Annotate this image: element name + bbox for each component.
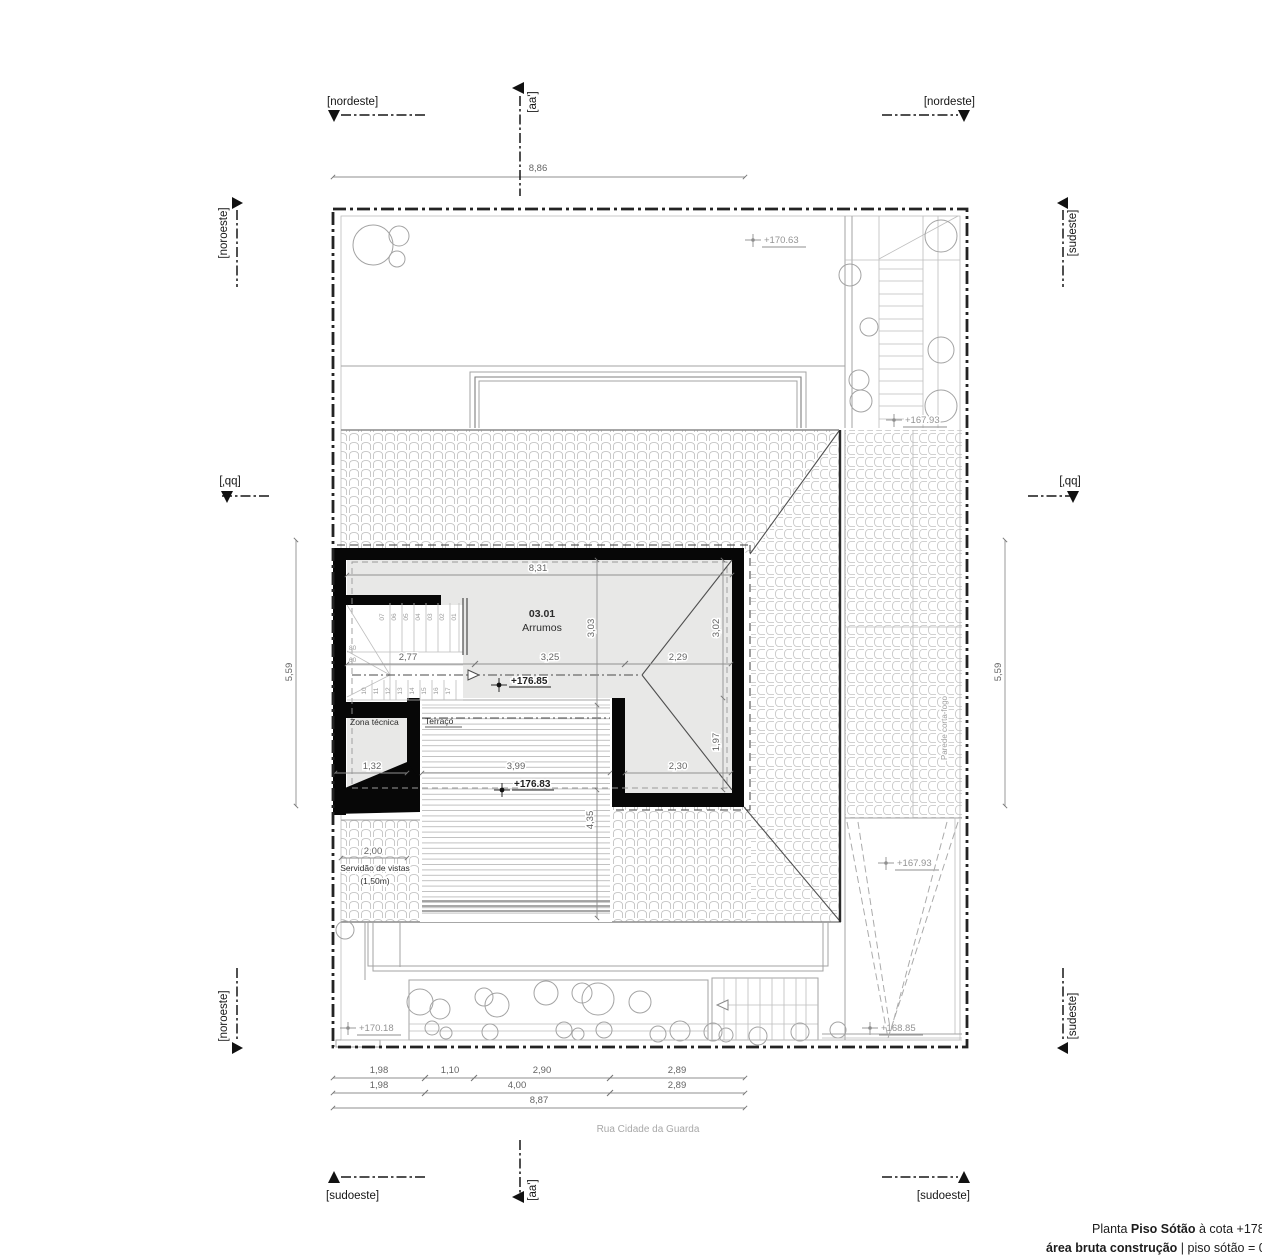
svg-text:+170.18: +170.18	[359, 1023, 394, 1034]
dim-room-width: 8,31	[529, 563, 548, 574]
svg-text:[bb']: [bb']	[219, 475, 240, 487]
svg-text:[aa']: [aa']	[527, 1179, 539, 1200]
plan-title-name: Piso Sótão	[1131, 1222, 1196, 1236]
svg-text:+176.85: +176.85	[511, 676, 548, 687]
marker-sudoeste-left: [sudoeste]	[326, 1171, 428, 1202]
marker-bb-right: [bb']	[1028, 475, 1081, 503]
level-roof-right: +167.93	[878, 857, 939, 870]
dim-terrace-width: 3,99	[507, 761, 526, 772]
svg-text:1,10: 1,10	[441, 1065, 460, 1076]
dim-room-right: 2,29	[669, 652, 688, 663]
dimension-chain-3: 8,87	[333, 1095, 745, 1108]
svg-text:[noroeste]: [noroeste]	[218, 990, 230, 1041]
area-value: | piso sótão = 031	[1177, 1241, 1262, 1255]
svg-text:[nordeste]: [nordeste]	[924, 96, 975, 108]
svg-text:2,90: 2,90	[533, 1065, 552, 1076]
servidao-line2: (1,50m)	[360, 876, 389, 886]
dim-servidao: 2,00	[364, 846, 383, 857]
dim-stair-run: 2,77	[399, 652, 418, 663]
stair-treads	[879, 269, 923, 419]
dim-top-width: 8,86	[529, 163, 548, 174]
dim-right-low-width: 2,30	[669, 761, 688, 772]
dim-right-low-height: 1,97	[711, 733, 722, 752]
dim-side-right: 5,59	[993, 663, 1004, 682]
svg-text:14: 14	[409, 687, 416, 695]
dim-terrace-depth: 4,35	[585, 811, 596, 830]
plan-title-prefix: Planta	[1092, 1222, 1131, 1236]
svg-text:01: 01	[451, 613, 458, 621]
area-label: área bruta construção	[1046, 1241, 1177, 1255]
svg-text:12: 12	[385, 687, 392, 695]
dim-side-left: 5,59	[284, 663, 295, 682]
svg-text:13: 13	[397, 687, 404, 695]
plan-title-suffix: à cota +178	[1196, 1222, 1262, 1236]
drainage-area	[822, 818, 962, 1040]
svg-text:1,98: 1,98	[370, 1080, 389, 1091]
plan-area-note: área bruta construção | piso sótão = 031	[1046, 1241, 1262, 1255]
dim-zona-width: 1,32	[363, 761, 382, 772]
stair-dim-60: 60	[349, 657, 357, 664]
svg-text:[noroeste]: [noroeste]	[218, 207, 230, 258]
svg-text:1,98: 1,98	[370, 1065, 389, 1076]
svg-text:05: 05	[403, 613, 410, 621]
svg-text:4,00: 4,00	[508, 1080, 527, 1091]
svg-text:07: 07	[379, 613, 386, 621]
skylight-opening	[470, 372, 806, 428]
street-name: Rua Cidade da Guarda	[597, 1124, 700, 1135]
dimension-chain-2: 1,98 4,00 2,89	[333, 1080, 745, 1096]
plan-title: Planta Piso Sótão à cota +178	[1092, 1222, 1262, 1236]
marker-aa-top: [aa']	[512, 82, 539, 196]
marker-sudeste-bottom: [sudeste]	[1057, 968, 1079, 1054]
svg-text:2,89: 2,89	[668, 1065, 687, 1076]
svg-text:[sudoeste]: [sudoeste]	[326, 1190, 379, 1202]
svg-text:03: 03	[427, 613, 434, 621]
marker-sudoeste-right: [sudoeste]	[882, 1171, 970, 1202]
level-garden-top: +170.63	[745, 234, 806, 247]
marker-sudeste-top: [sudeste]	[1057, 197, 1079, 287]
marker-aa-bottom: [aa']	[512, 1140, 539, 1203]
svg-text:10: 10	[361, 687, 368, 695]
terrace-decking	[422, 706, 610, 918]
marker-nordeste-left: [nordeste]	[327, 96, 428, 122]
svg-text:[bb']: [bb']	[1059, 475, 1080, 487]
terraco-label: Terraço	[425, 716, 454, 726]
svg-text:+167.93: +167.93	[905, 415, 940, 426]
svg-text:15: 15	[421, 687, 428, 695]
svg-text:+170.63: +170.63	[764, 235, 799, 246]
svg-text:8,87: 8,87	[530, 1095, 549, 1106]
svg-text:[sudeste]: [sudeste]	[1067, 210, 1079, 257]
exterior-stair-top	[839, 216, 960, 428]
svg-text:[aa']: [aa']	[527, 91, 539, 112]
level-stair-top: +167.93	[886, 414, 947, 427]
svg-text:16: 16	[433, 687, 440, 695]
svg-text:04: 04	[415, 613, 422, 621]
svg-text:2,89: 2,89	[668, 1080, 687, 1091]
stair-dim-80: 80	[349, 645, 357, 652]
level-garden-bottom-left: +170.18	[340, 1022, 401, 1035]
marker-bb-left: [bb']	[219, 475, 272, 503]
floor-plan-drawing: Parede corta-fogo	[0, 0, 1262, 1256]
zona-tecnica-label: Zona técnica	[350, 717, 399, 727]
marker-nordeste-right: [nordeste]	[882, 96, 975, 122]
room-name: Arrumos	[522, 622, 562, 634]
svg-text:+176.83: +176.83	[514, 779, 551, 790]
svg-text:02: 02	[439, 613, 446, 621]
marker-noroeste-bottom: [noroeste]	[218, 968, 243, 1054]
dimension-chain-1: 1,98 1,10 2,90 2,89	[333, 1065, 745, 1081]
stair-down-arrow-icon	[717, 1000, 728, 1010]
servidao-line1: Servidão de vistas	[340, 863, 409, 873]
svg-text:17: 17	[445, 687, 452, 695]
dim-room-height-left: 3,03	[586, 619, 597, 638]
bushes	[407, 981, 846, 1045]
marker-noroeste-top: [noroeste]	[218, 197, 243, 287]
room-number: 03.01	[529, 608, 555, 620]
svg-text:06: 06	[391, 613, 398, 621]
dim-room-height-right: 3,02	[711, 619, 722, 638]
svg-text:+167.93: +167.93	[897, 858, 932, 869]
title-block: Planta Piso Sótão à cota +178 área bruta…	[0, 1222, 1262, 1256]
svg-text:[sudeste]: [sudeste]	[1067, 993, 1079, 1040]
dim-room-mid: 3,25	[541, 652, 560, 663]
svg-text:[nordeste]: [nordeste]	[327, 96, 378, 108]
svg-text:[sudoeste]: [sudoeste]	[917, 1190, 970, 1202]
svg-text:11: 11	[373, 687, 380, 694]
firewall-label: Parede corta-fogo	[940, 695, 949, 760]
